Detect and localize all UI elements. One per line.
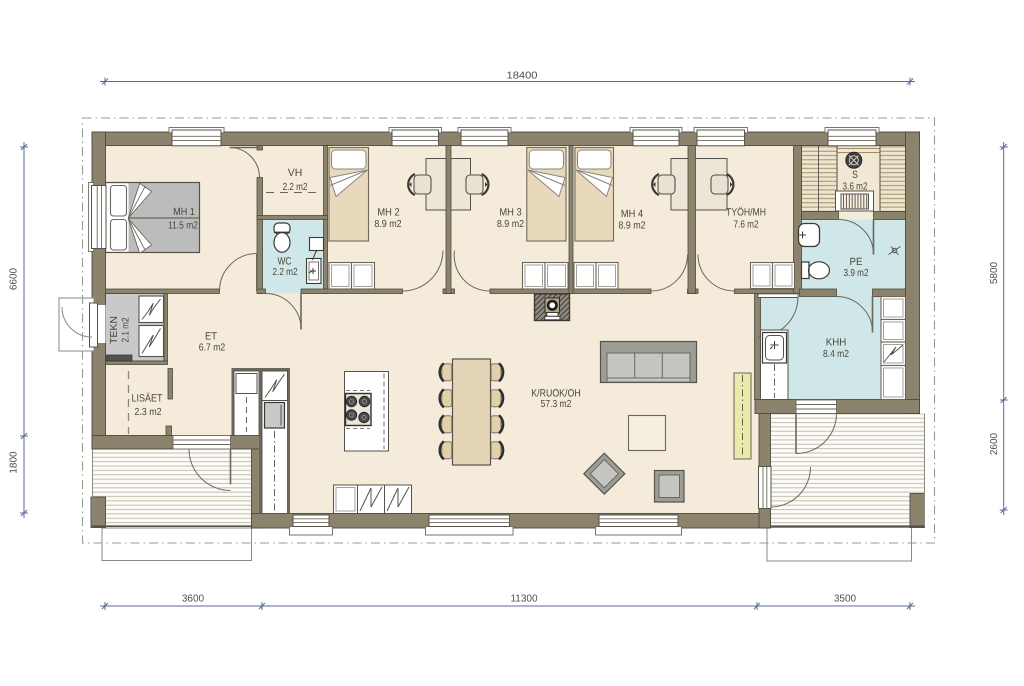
svg-text:WC: WC: [278, 256, 292, 268]
svg-text:8.9 m2: 8.9 m2: [497, 219, 525, 230]
svg-text:K/RUOK/OH: K/RUOK/OH: [531, 388, 580, 400]
svg-text:2.3 m2: 2.3 m2: [134, 407, 162, 418]
svg-text:TYÖH/MH: TYÖH/MH: [726, 207, 766, 219]
svg-text:57.3 m2: 57.3 m2: [541, 399, 572, 410]
svg-text:2.2 m2: 2.2 m2: [273, 267, 298, 278]
svg-text:TEKN: TEKN: [109, 316, 120, 344]
svg-text:3600: 3600: [182, 594, 205, 605]
svg-text:MH 1: MH 1: [173, 206, 195, 218]
svg-text:S: S: [852, 169, 858, 181]
svg-text:8.4 m2: 8.4 m2: [823, 349, 849, 360]
svg-text:LISÄET: LISÄET: [132, 393, 163, 405]
svg-text:PE: PE: [850, 256, 863, 268]
svg-text:3.6 m2: 3.6 m2: [843, 182, 868, 193]
svg-text:6600: 6600: [9, 267, 20, 290]
svg-text:8.9 m2: 8.9 m2: [374, 219, 402, 230]
svg-text:18400: 18400: [507, 71, 538, 82]
svg-text:VH: VH: [288, 167, 303, 179]
svg-text:2.1 m2: 2.1 m2: [121, 318, 132, 343]
svg-text:3.9 m2: 3.9 m2: [844, 268, 869, 279]
svg-text:5800: 5800: [989, 261, 1000, 284]
svg-text:7.6 m2: 7.6 m2: [734, 220, 759, 231]
svg-text:11.5 m2: 11.5 m2: [168, 221, 198, 232]
svg-text:2.2 m2: 2.2 m2: [283, 182, 308, 193]
svg-text:MH 3: MH 3: [499, 207, 521, 219]
svg-text:MH 4: MH 4: [621, 208, 643, 220]
svg-text:1800: 1800: [9, 451, 20, 474]
svg-text:MH 2: MH 2: [377, 207, 399, 219]
svg-text:8.9 m2: 8.9 m2: [618, 221, 646, 232]
svg-text:ET: ET: [205, 331, 218, 343]
svg-text:11300: 11300: [510, 594, 538, 605]
svg-text:KHH: KHH: [826, 337, 847, 349]
svg-text:2600: 2600: [989, 432, 1000, 455]
svg-text:3500: 3500: [834, 594, 857, 605]
svg-text:6.7 m2: 6.7 m2: [199, 343, 226, 354]
